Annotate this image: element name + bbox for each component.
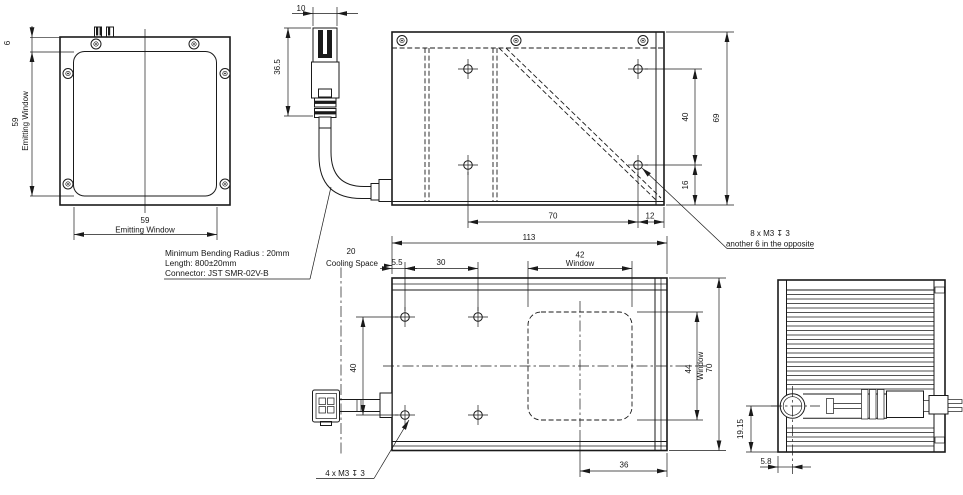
cable-note-connector: Connector: JST SMR-02V-B [165,268,269,278]
heatsink-fins-upper [787,295,935,390]
side-body [778,280,945,452]
cable-note-length: Length: 800±20mm [165,258,237,268]
dim-front-height-text: 59 [11,117,20,126]
bottom-body [392,278,667,451]
side-view: 19.15 5.8 [736,280,962,474]
cable-gland-stub [371,184,379,201]
dim-front-height-label: Emitting Window [21,91,30,151]
inline-connector-housing [887,391,924,418]
top-thread-note-line2: another 6 in the opposite [726,240,815,249]
bottom-view: 113 20 Cooling Space 5.5 30 42 Window [313,233,727,479]
cable-note-bending-radius: Minimum Bending Radius : 20mm [165,248,290,258]
tapped-hole [458,59,478,79]
dim-window-to-edge-text: 36 [620,461,629,470]
dim-window-height-text: 44 [684,364,693,373]
screw-head-icon [638,36,648,46]
screw-head-icon [63,69,73,79]
screw-head-icon [397,36,407,46]
dim-front-width-text: 59 [141,216,150,225]
dim-front-width-label: Emitting Window [115,226,175,235]
front-view: 6 59 Emitting Window 59 Emitting Window [3,26,230,240]
top-thread-note: 8 x M3 ↧ 3 another 6 in the opposite [642,168,815,249]
dim-top-hole-spacing-v: 40 [645,69,702,165]
drawing-sheet: 6 59 Emitting Window 59 Emitting Window [0,0,963,495]
cable-gland [379,180,392,202]
dim-top-hole-spacing-v-text: 40 [681,112,690,121]
dim-connector-height: 36.5 [273,28,313,116]
dim-connector-width-text: 10 [297,4,306,13]
screw-head-icon [220,69,230,79]
bottom-thread-note-text: 4 x M3 ↧ 3 [325,469,365,478]
dim-cooling-text: 20 [347,247,356,256]
dim-window-to-edge: 36 [580,430,667,477]
plug-connector [929,396,948,415]
dim-top-height-text: 69 [712,113,721,122]
screw-head-icon [511,36,521,46]
dim-cable-to-bottom: 19.15 [736,406,779,452]
dim-window-width-label: Window [566,259,595,268]
side-cable-assembly [771,386,962,474]
dim-cooling-label: Cooling Space [326,259,379,268]
dim-cooling-space: 20 Cooling Space [320,247,392,268]
cable-notes: Minimum Bending Radius : 20mm Length: 80… [164,187,331,279]
top-body [392,32,664,205]
screw-head-icon [63,179,73,189]
dim-bottom-hole-spacing-h-text: 30 [437,258,446,267]
dim-top-hole-spacing-h-text: 70 [549,212,558,221]
dim-bottom-edge: 5.5 [380,258,417,311]
dim-top-hole-right-text: 12 [646,212,655,221]
tapped-hole [468,405,488,425]
top-tabs [95,27,114,37]
strain-relief [315,98,337,118]
screw-head-icon [91,39,101,49]
dim-bottom-edge-text: 5.5 [391,258,403,267]
bottom-thread-note: 4 x M3 ↧ 3 [316,420,409,479]
connector-ferrule [380,393,392,418]
top-view: 70 12 40 16 69 8 x M3 ↧ 3 another 6 i [392,32,815,249]
side-connector [313,390,393,426]
dim-top-hole-spacing-h: 70 [468,172,638,228]
screw-head-icon [220,179,230,189]
dim-cable-to-left-text: 5.8 [760,457,772,466]
dim-bottom-length-text: 113 [523,233,536,242]
dim-bottom-hole-spacing-v-text: 40 [349,363,358,372]
dim-cable-to-left: 5.8 [760,456,811,473]
heatsink-fins-lower [787,428,935,446]
dim-window-height-label: Window [696,352,705,381]
dim-front-offset-text: 6 [3,40,12,45]
top-thread-note-line1: 8 x M3 ↧ 3 [750,229,790,238]
connector-face [313,390,340,422]
technical-drawing: 6 59 Emitting Window 59 Emitting Window [0,0,963,495]
diagonal-hidden-line [499,48,656,200]
cable [319,117,373,199]
connector-housing [312,62,340,98]
dim-front-width: 59 Emitting Window [74,207,217,240]
dim-top-hole-right: 12 [638,207,664,228]
dim-bottom-length: 113 [392,233,667,274]
dim-bottom-hole-spacing-h: 30 [405,258,478,311]
dim-top-hole-bottom-text: 16 [681,180,690,189]
screw-head-icon [189,39,199,49]
dim-connector-height-text: 36.5 [273,59,282,75]
dim-connector-width: 10 [292,4,358,26]
dim-bottom-height-text: 70 [705,363,714,372]
dim-cable-to-bottom-text: 19.15 [736,418,745,439]
dim-front-offset: 6 [3,26,74,52]
dim-top-hole-bottom: 16 [666,165,734,205]
dim-top-height: 69 [666,32,734,205]
